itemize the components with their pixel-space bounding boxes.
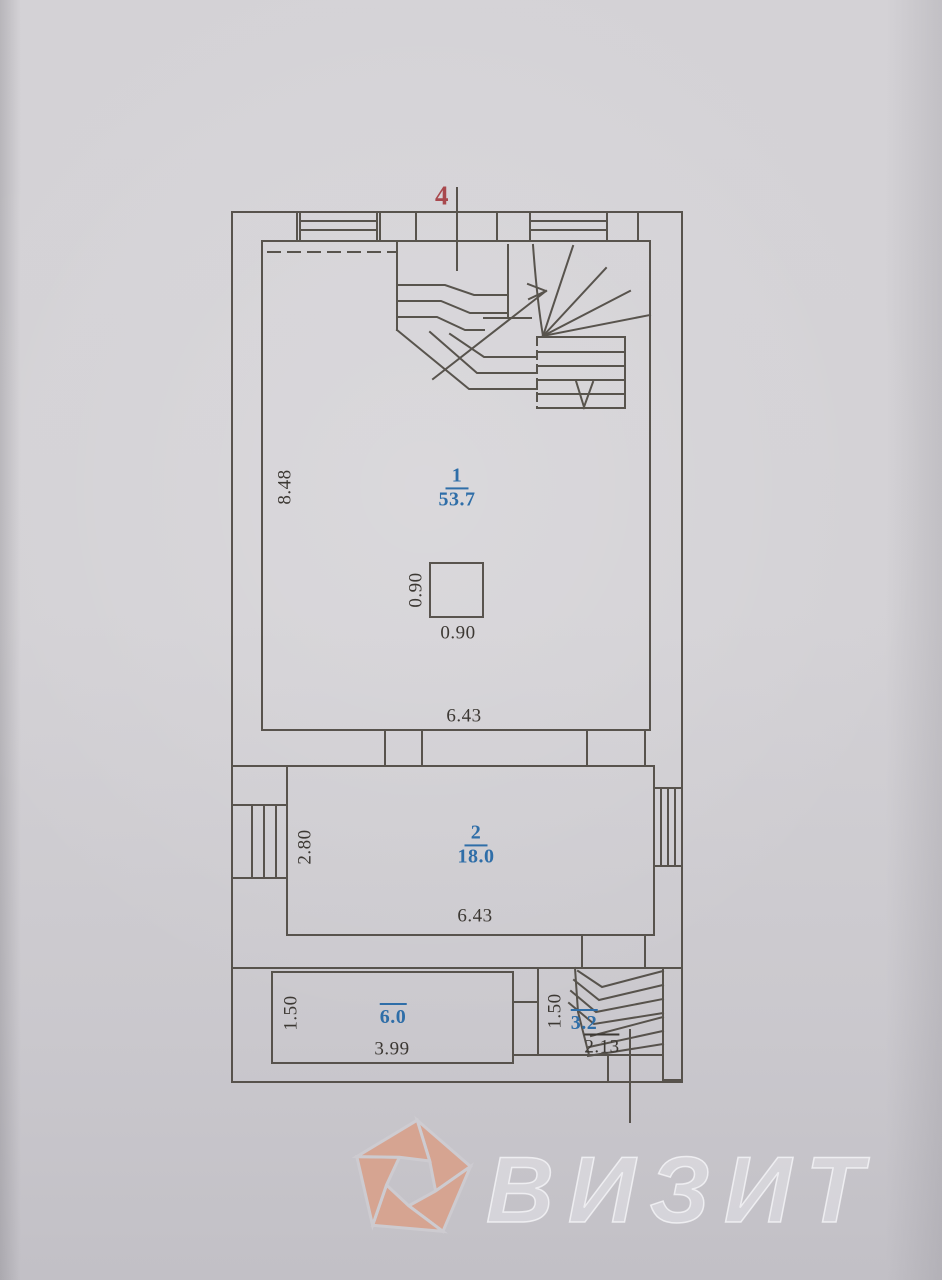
room2-label: 2 18.0 <box>458 822 495 867</box>
logo-blade <box>357 1120 430 1161</box>
room2-number: 2 <box>465 822 488 846</box>
room2-area: 18.0 <box>458 846 495 868</box>
dim-room2-height: 2.80 <box>296 829 315 864</box>
scanned-floor-plan: ВИЗИТ 4 1 53.7 8.48 6.43 0.90 0.90 2 18.… <box>0 0 942 1280</box>
room1-area: 53.7 <box>439 489 476 511</box>
room4-area: 3.2 <box>571 1009 598 1033</box>
dim-room4-width: 2.13 <box>584 1034 619 1057</box>
section-lines <box>457 188 630 1122</box>
dim-room1-width: 6.43 <box>446 707 481 726</box>
dim-room1-height: 8.48 <box>276 469 295 504</box>
bottom-rooms-walls <box>272 968 682 1082</box>
section-marker-label: 4 <box>435 183 449 210</box>
watermark-logo <box>357 1120 471 1231</box>
dim-room3-height: 1.50 <box>282 995 301 1030</box>
column <box>430 563 483 617</box>
room2-bottom-wall <box>232 935 682 968</box>
dim-room4-height: 1.50 <box>546 993 565 1028</box>
room1-number: 1 <box>446 465 469 489</box>
room1-room2-wall <box>232 730 654 766</box>
dim-room3-width: 3.99 <box>374 1040 409 1059</box>
dim-room2-width: 6.43 <box>457 907 492 926</box>
dim-column-height: 0.90 <box>407 572 426 607</box>
watermark-text: ВИЗИТ <box>486 1137 877 1242</box>
upper-staircase <box>397 243 650 408</box>
room1-label: 1 53.7 <box>439 465 476 510</box>
dim-column-width: 0.90 <box>440 624 475 643</box>
room3-area: 6.0 <box>380 1003 407 1027</box>
room2-right-window <box>654 788 682 866</box>
room2-left-window <box>232 805 287 878</box>
outer-walls <box>232 212 682 1082</box>
